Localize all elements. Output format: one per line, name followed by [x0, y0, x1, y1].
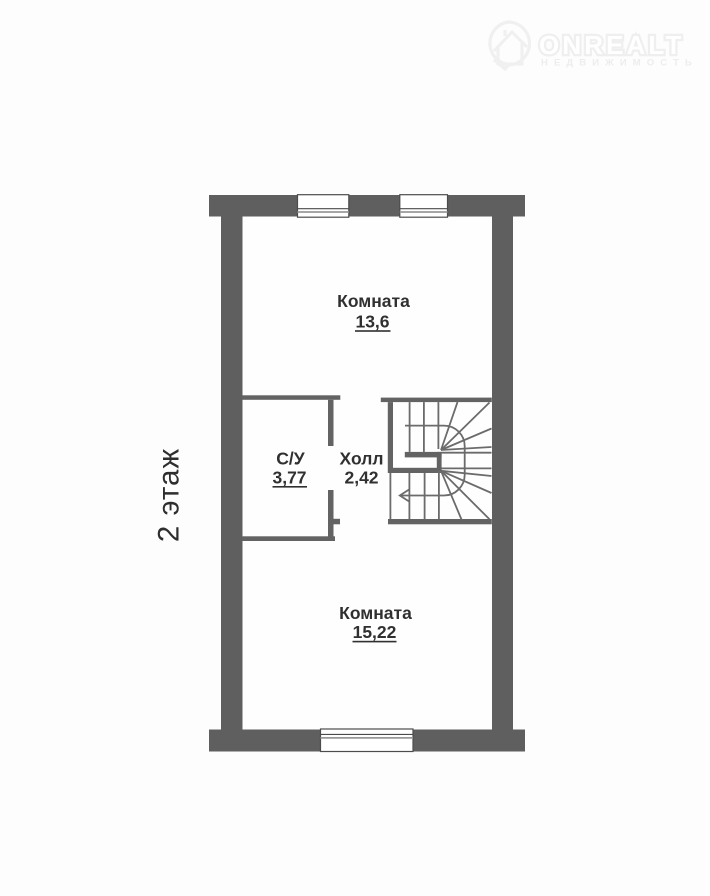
- svg-text:3,77: 3,77: [272, 467, 306, 487]
- svg-text:15,22: 15,22: [353, 622, 397, 642]
- svg-text:Комната: Комната: [339, 603, 412, 623]
- svg-text:Холл: Холл: [340, 449, 384, 469]
- svg-text:2 этаж: 2 этаж: [153, 448, 186, 542]
- svg-text:Комната: Комната: [337, 291, 410, 311]
- svg-text:С/У: С/У: [276, 449, 306, 469]
- svg-text:13,6: 13,6: [355, 312, 389, 332]
- svg-text:2,42: 2,42: [344, 467, 378, 487]
- svg-text:ONREALT: ONREALT: [539, 30, 684, 60]
- svg-text:НЕДВИЖИМОСТЬ: НЕДВИЖИМОСТЬ: [541, 58, 698, 69]
